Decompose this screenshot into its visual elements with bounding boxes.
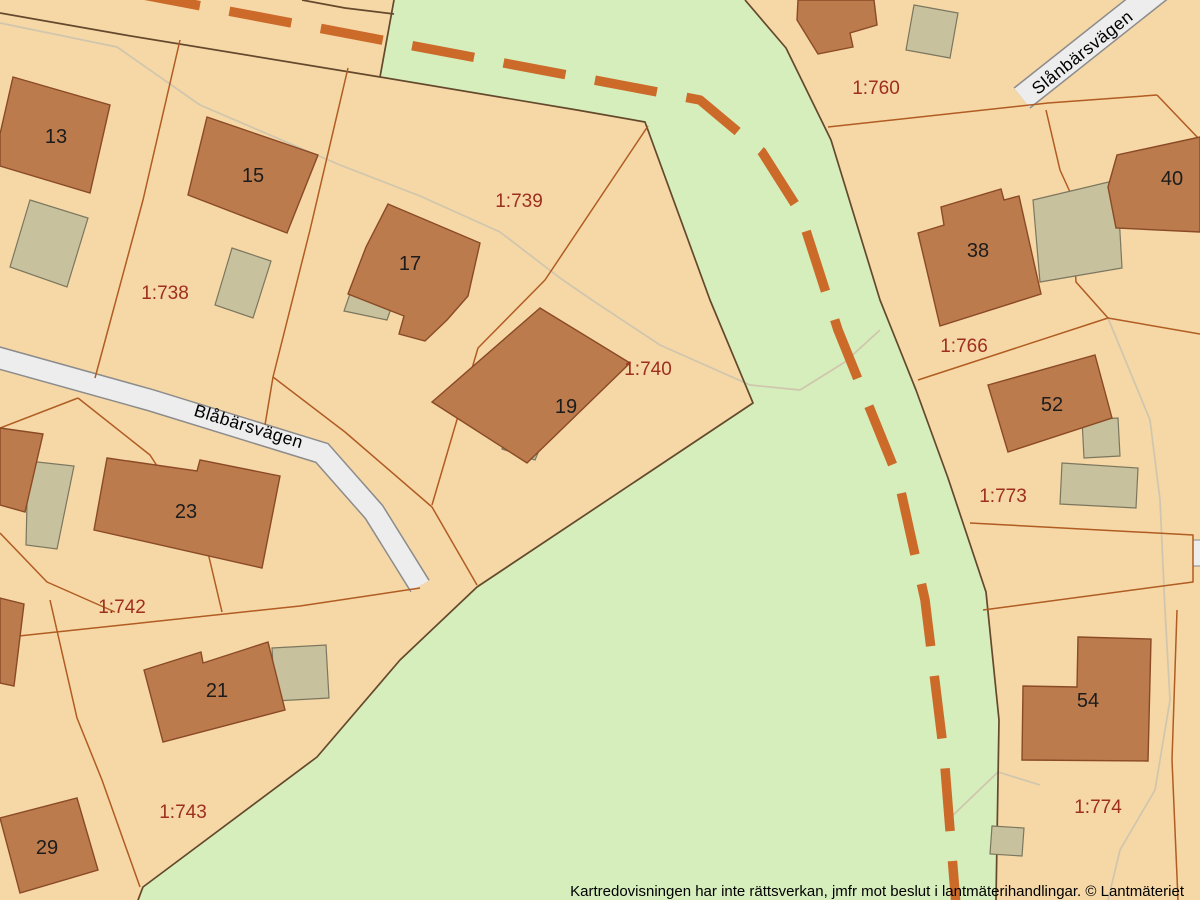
parcel-label-1-743: 1:743 xyxy=(159,802,207,823)
building-number-38: 38 xyxy=(967,240,989,262)
parcel-label-1-742: 1:742 xyxy=(98,597,146,618)
road-edge-sliver xyxy=(1193,540,1200,566)
building-number-19: 19 xyxy=(555,396,577,418)
building-number-15: 15 xyxy=(242,165,264,187)
outbuilding xyxy=(990,826,1024,856)
cadastral-map[interactable]: 13 15 17 19 21 23 29 38 40 52 54 1:738 1… xyxy=(0,0,1200,900)
building-number-13: 13 xyxy=(45,126,67,148)
building-number-52: 52 xyxy=(1041,394,1063,416)
parcel-label-1-738: 1:738 xyxy=(141,283,189,304)
map-disclaimer: Kartredovisningen har inte rättsverkan, … xyxy=(570,883,1185,900)
parcel-label-1-739: 1:739 xyxy=(495,191,543,212)
parcel-label-1-740: 1:740 xyxy=(624,359,672,380)
building-number-23: 23 xyxy=(175,501,197,523)
building-number-40: 40 xyxy=(1161,168,1183,190)
building-number-21: 21 xyxy=(206,680,228,702)
building-number-17: 17 xyxy=(399,253,421,275)
parcel-label-1-766: 1:766 xyxy=(940,336,988,357)
building-number-54: 54 xyxy=(1077,690,1099,712)
building-number-29: 29 xyxy=(36,837,58,859)
parcel-label-1-774: 1:774 xyxy=(1074,797,1122,818)
map-viewport[interactable]: 13 15 17 19 21 23 29 38 40 52 54 1:738 1… xyxy=(0,0,1200,900)
outbuilding xyxy=(906,5,958,58)
outbuilding xyxy=(1060,463,1138,508)
parcel-label-1-760: 1:760 xyxy=(852,78,900,99)
parcel-label-1-773: 1:773 xyxy=(979,486,1027,507)
